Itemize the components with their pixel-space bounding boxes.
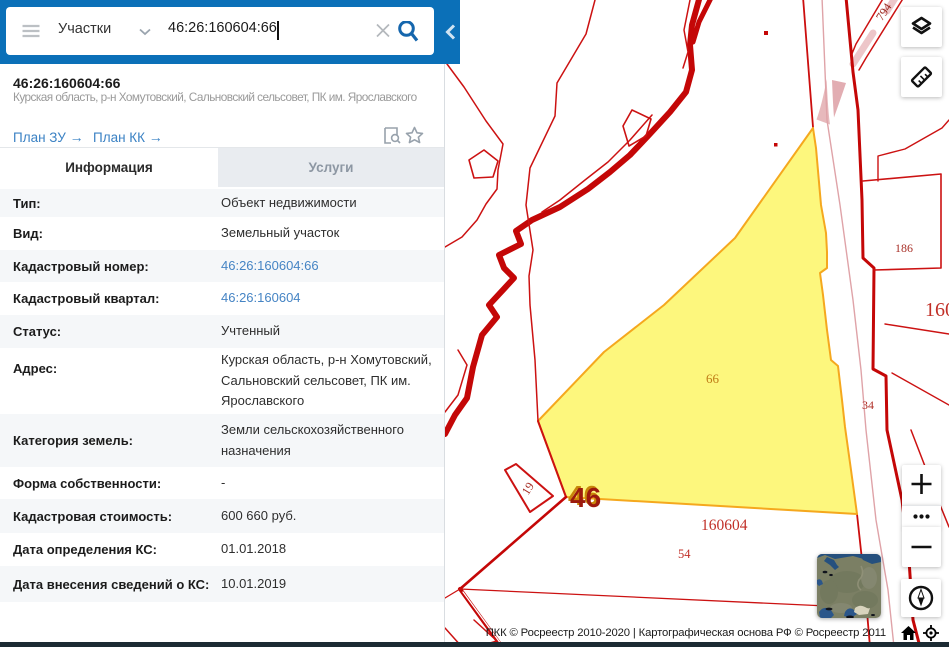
svg-text:ПКК © Росреестр 2010-2020 | Ка: ПКК © Росреестр 2010-2020 | Картографиче… [486, 627, 886, 639]
svg-text:160604: 160604 [701, 517, 748, 534]
svg-text:54: 54 [678, 547, 691, 561]
svg-text:186: 186 [895, 241, 913, 255]
svg-text:66: 66 [706, 371, 720, 386]
svg-text:34: 34 [862, 398, 874, 412]
svg-text:46: 46 [570, 482, 601, 513]
svg-text:160: 160 [925, 299, 949, 321]
